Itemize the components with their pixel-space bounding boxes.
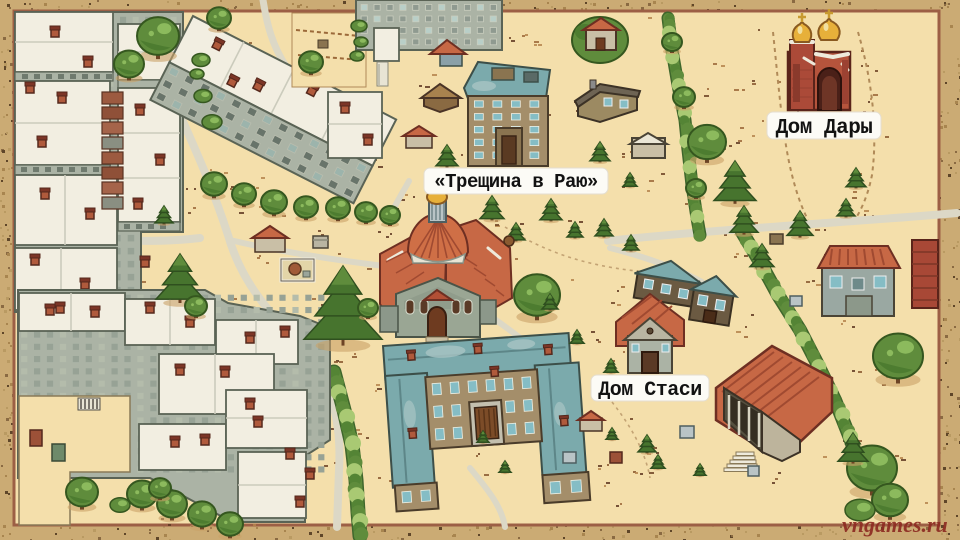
svg-text:Дом Стаси: Дом Стаси xyxy=(598,379,702,402)
svg-text:«Трещина в Раю»: «Трещина в Раю» xyxy=(434,171,598,193)
svg-text:Дом Дары: Дом Дары xyxy=(776,117,873,140)
svg-text:vngames.ru: vngames.ru xyxy=(842,512,948,537)
